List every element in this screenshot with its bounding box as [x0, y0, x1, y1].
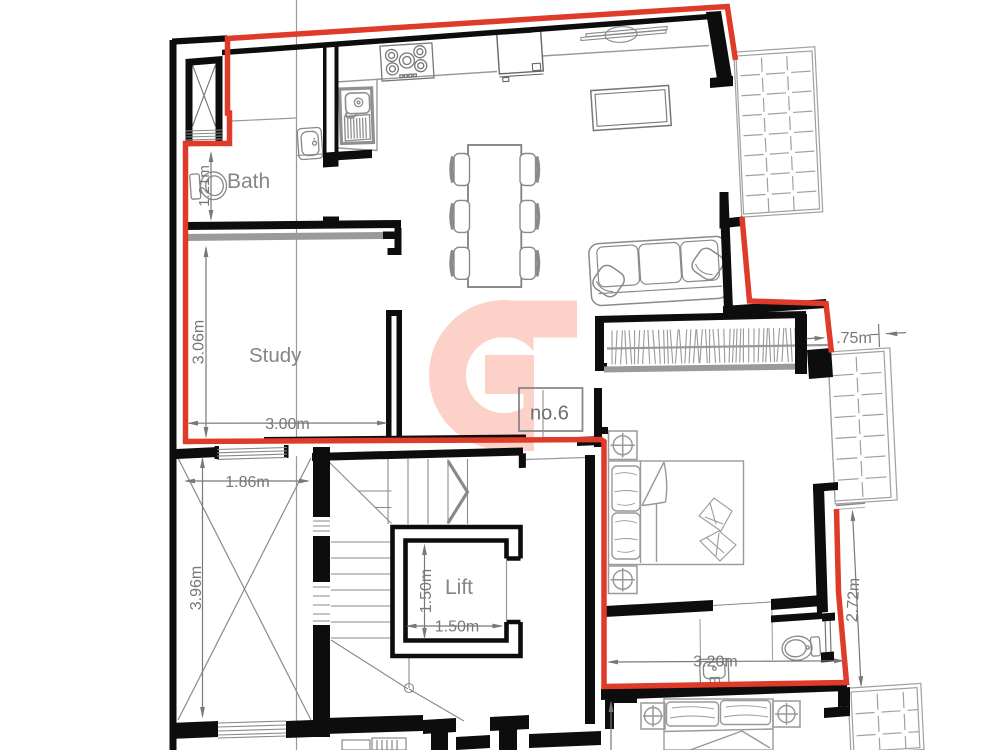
svg-text:Bath: Bath [227, 170, 270, 193]
svg-text:1.50m: 1.50m [418, 569, 435, 613]
svg-text:Lift: Lift [445, 576, 473, 599]
svg-text:3.20m: 3.20m [693, 654, 737, 671]
svg-text:1.21m: 1.21m [196, 165, 213, 207]
svg-text:.75m: .75m [836, 330, 872, 347]
svg-text:2.72m: 2.72m [844, 577, 863, 622]
svg-text:3.06m: 3.06m [191, 320, 208, 364]
svg-text:3.96m: 3.96m [188, 566, 205, 610]
svg-text:1.86m: 1.86m [225, 474, 269, 491]
svg-text:no.6: no.6 [530, 403, 569, 425]
svg-text:3.00m: 3.00m [265, 416, 309, 433]
svg-text:Study: Study [249, 344, 302, 367]
svg-text:1.50m: 1.50m [435, 619, 479, 636]
